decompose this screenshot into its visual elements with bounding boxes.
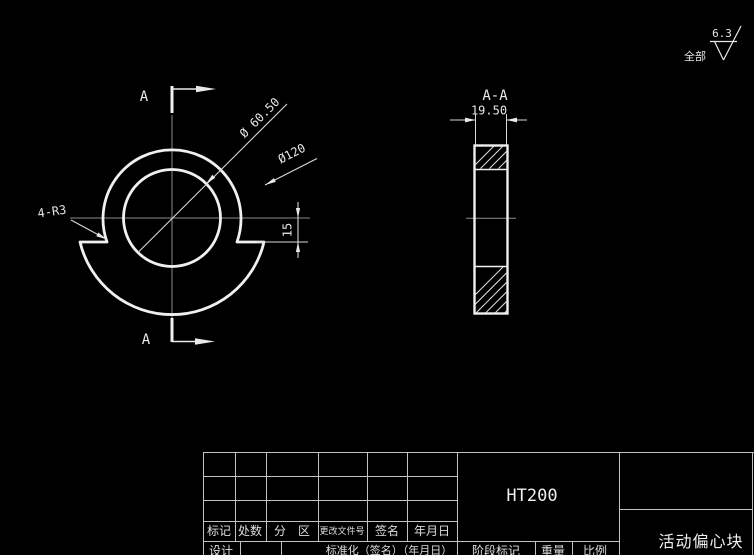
row-scale-label: 比例 xyxy=(583,544,607,555)
grid-line xyxy=(235,452,236,541)
part-name: 活动偏心块 xyxy=(658,536,743,550)
section-view-title: A-A xyxy=(482,88,508,104)
header-count: 处数 xyxy=(238,524,262,538)
surface-roughness-note: 全部 6.3 xyxy=(684,26,741,63)
grid-line xyxy=(203,476,457,477)
grid-line xyxy=(281,541,282,555)
grid-line xyxy=(240,541,241,555)
grid-line xyxy=(266,452,267,541)
section-label-top: A xyxy=(140,89,149,105)
material-value: HT200 xyxy=(506,489,557,503)
section-arrow xyxy=(196,86,216,92)
row-weight-label: 重量 xyxy=(541,544,565,555)
surface-note-scope: 全部 xyxy=(684,49,706,63)
section-marker-bottom: A xyxy=(142,318,215,348)
grid-line xyxy=(535,541,536,555)
drawing-views-svg: Ø 60.50 Ø120 4-R3 15 xyxy=(0,0,754,555)
dim-outer-diameter: Ø120 xyxy=(265,141,317,185)
dim-hole-diameter-text: Ø 60.50 xyxy=(237,95,283,141)
grid-line xyxy=(457,452,458,555)
cad-drawing-canvas: Ø 60.50 Ø120 4-R3 15 xyxy=(0,0,754,555)
grid-line xyxy=(203,521,457,522)
header-date: 年月日 xyxy=(414,524,450,538)
grid-line xyxy=(752,452,753,555)
grid-line xyxy=(203,500,457,501)
surface-roughness-value: 6.3 xyxy=(712,27,732,40)
grid-line xyxy=(619,509,752,510)
arrowhead xyxy=(296,208,300,218)
dim-hole-diameter: Ø 60.50 xyxy=(138,95,287,253)
section-view: A-A 19.50 xyxy=(450,88,560,320)
dim-fillet: 4-R3 xyxy=(37,203,107,240)
dim-fillet-text: 4-R3 xyxy=(37,203,68,221)
arrowhead xyxy=(465,118,476,123)
section-arrow xyxy=(195,338,215,344)
grid-line xyxy=(203,541,619,542)
grid-line xyxy=(203,452,204,555)
main-view: Ø 60.50 Ø120 4-R3 15 xyxy=(37,86,317,348)
section-label-bottom: A xyxy=(142,332,151,348)
dim-offset-text: 15 xyxy=(281,223,295,237)
grid-line xyxy=(619,452,620,555)
header-zone: 分 区 xyxy=(274,524,310,538)
arrowhead xyxy=(507,118,518,123)
row-design-label: 设计 xyxy=(209,544,233,555)
row-standardization-label: 标准化（签名）（年月日） xyxy=(326,544,453,555)
dim-thickness: 19.50 xyxy=(450,104,527,147)
header-mark: 标记 xyxy=(207,524,231,538)
grid-line xyxy=(203,452,754,453)
grid-line xyxy=(407,452,408,541)
dim-offset: 15 xyxy=(256,202,308,258)
grid-line xyxy=(367,452,368,541)
header-change-file-no: 更改文件号 xyxy=(319,524,364,538)
arrowhead xyxy=(265,178,276,185)
dim-outer-diameter-text: Ø120 xyxy=(276,141,308,167)
section-marker-top: A xyxy=(140,86,216,113)
grid-line xyxy=(572,541,573,555)
arrowhead xyxy=(296,242,300,252)
row-stage-label: 阶段标记 xyxy=(472,544,520,555)
header-signature: 签名 xyxy=(375,524,399,538)
dim-thickness-text: 19.50 xyxy=(471,104,507,118)
